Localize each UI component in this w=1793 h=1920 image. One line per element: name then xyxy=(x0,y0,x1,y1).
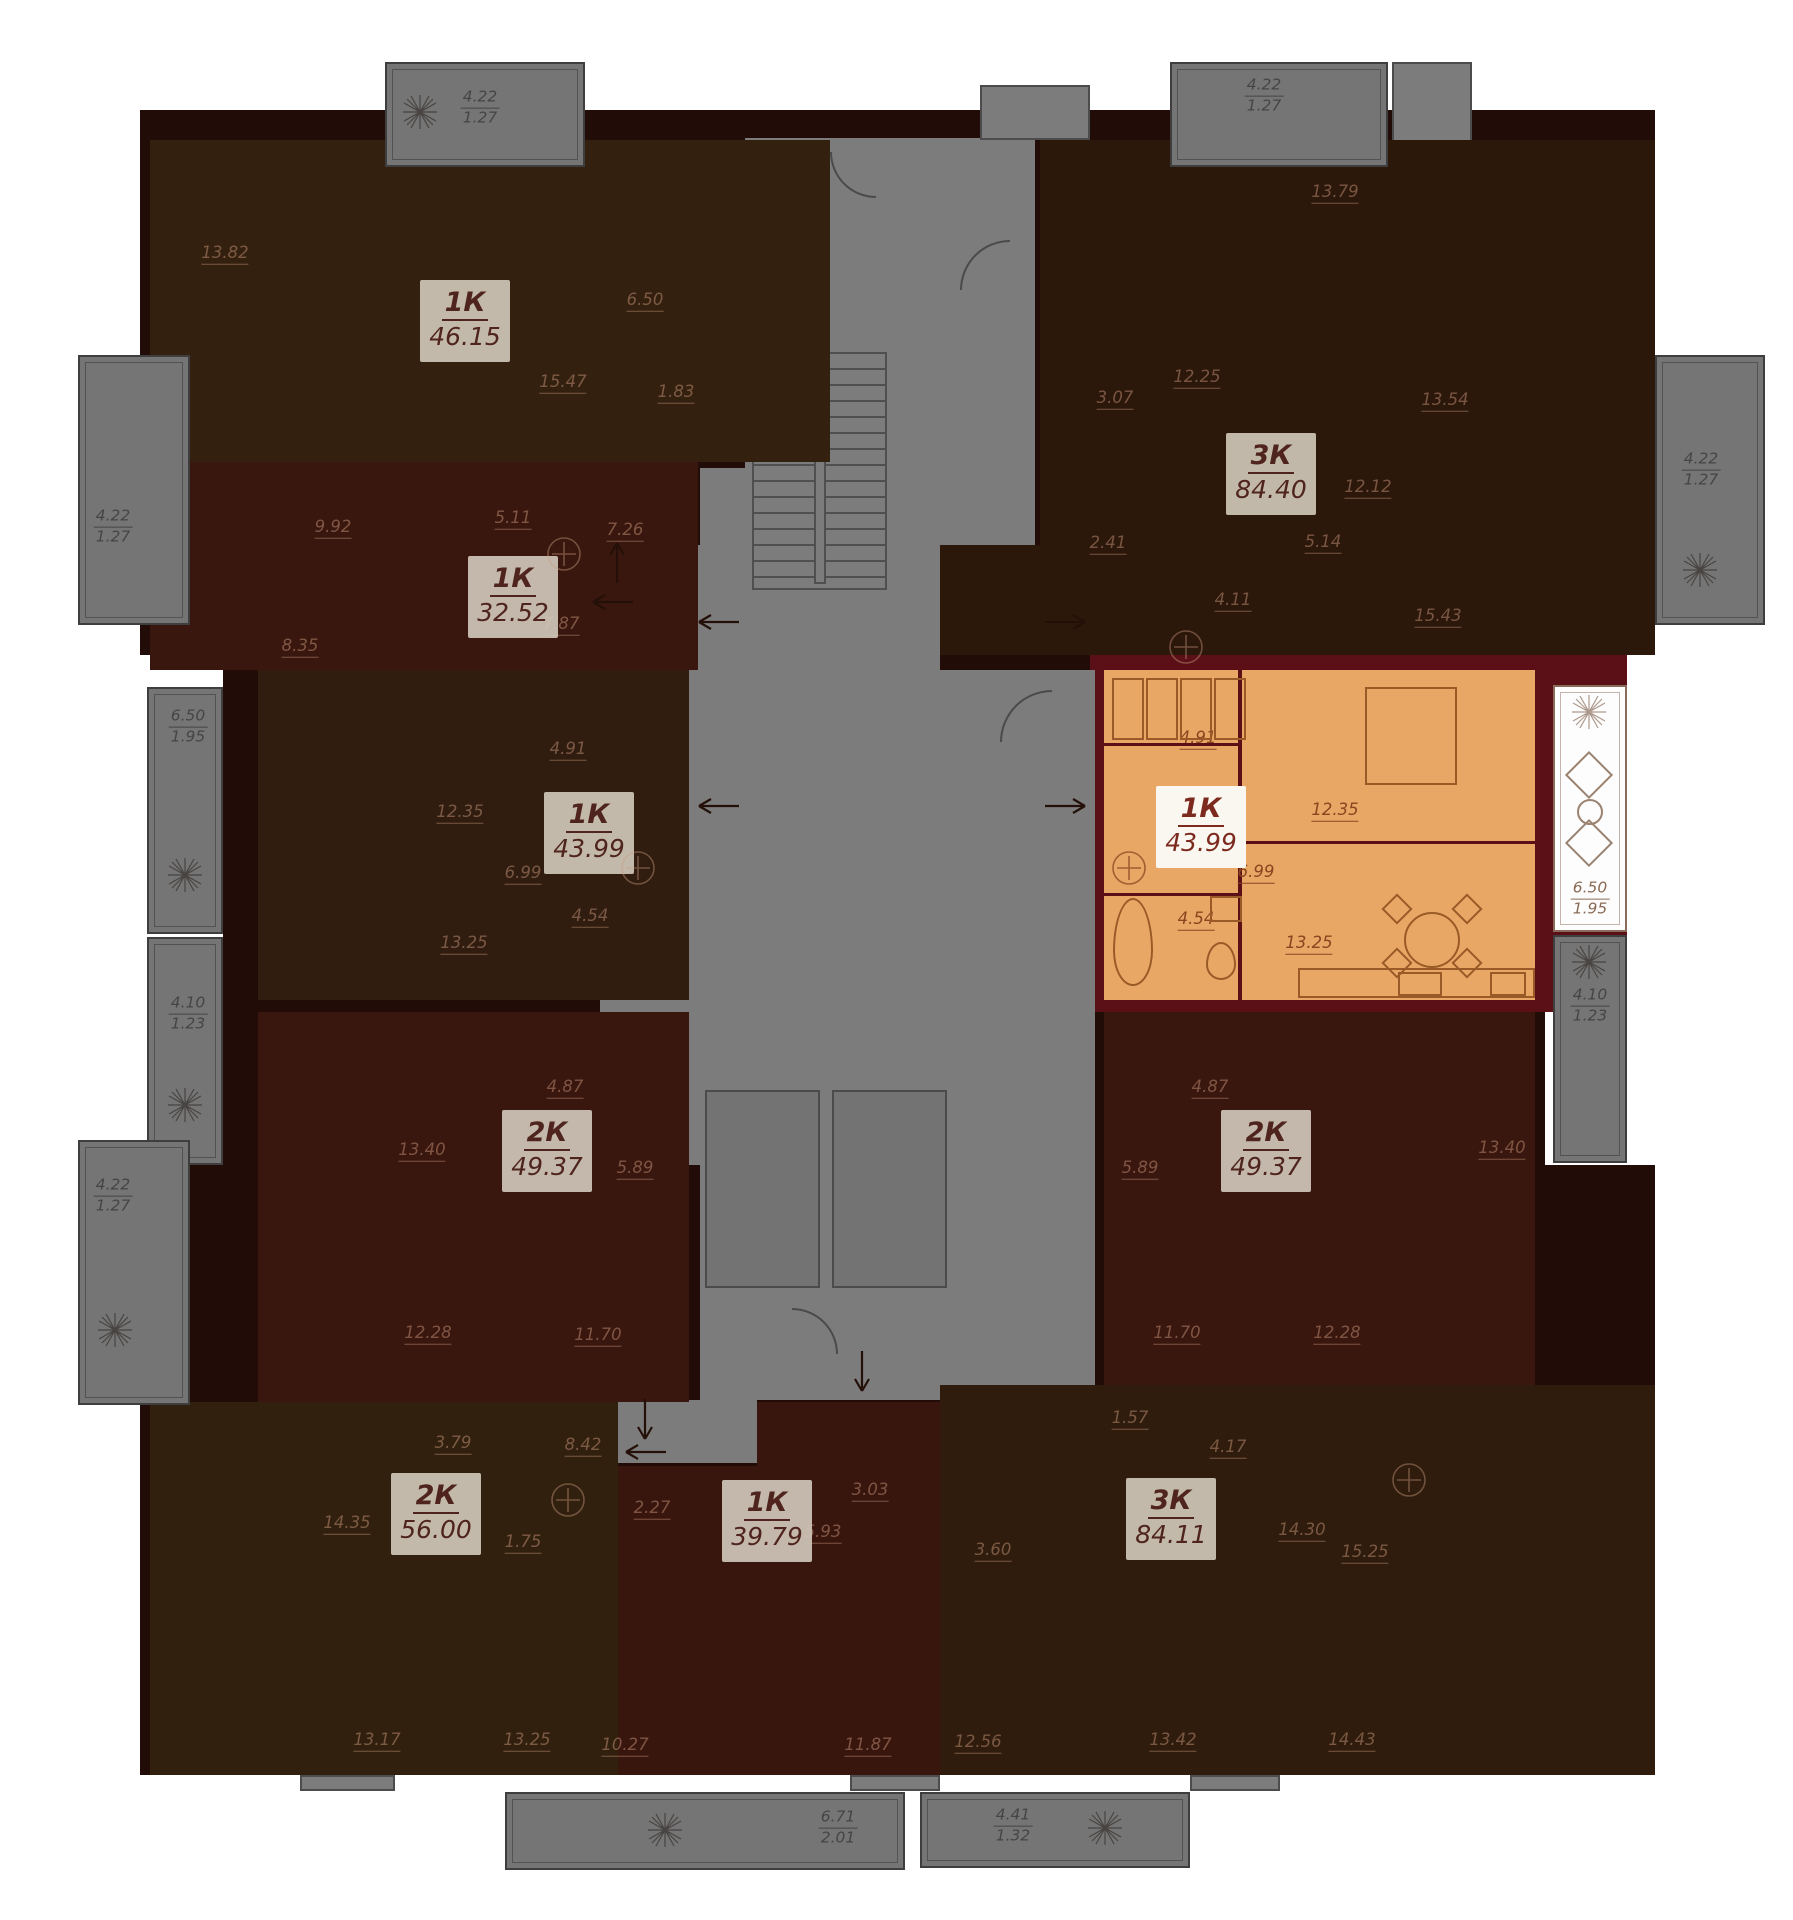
entrance-arrow-icon xyxy=(695,613,741,631)
unit-type-label: 2К xyxy=(413,1480,460,1514)
room-area-value: 5.89 xyxy=(1122,1158,1159,1180)
unit-type-label: 3К xyxy=(1248,440,1295,474)
room-area-label: 12.28 xyxy=(1313,1325,1360,1342)
balcony-area-label: 4.221.27 xyxy=(1682,450,1721,491)
room-area-label: 6.50 xyxy=(627,292,664,309)
balcony-area-value: 4.41 xyxy=(994,1806,1033,1827)
bed-icon xyxy=(1365,687,1457,785)
balcony-coef-value: 1.95 xyxy=(1571,900,1610,919)
room-area-value: 13.25 xyxy=(440,933,487,955)
entrance-arrow-icon xyxy=(1043,797,1089,815)
balcony-coef-value: 1.27 xyxy=(94,528,133,547)
room-area-label: 12.12 xyxy=(1344,479,1391,496)
toilet-icon xyxy=(1206,942,1236,980)
unit-card[interactable]: 2К49.37 xyxy=(1221,1110,1311,1192)
room-area-value: 11.70 xyxy=(1153,1323,1200,1345)
balcony-area-value: 4.22 xyxy=(94,1176,133,1197)
unit-area-label: 84.11 xyxy=(1130,1519,1212,1552)
room-area-label: 4.11 xyxy=(1215,592,1252,609)
entrance-arrow-icon xyxy=(695,797,741,815)
room-area-value: 13.82 xyxy=(201,243,248,265)
room-area-value: 15.25 xyxy=(1341,1542,1388,1564)
room-area-value: 4.54 xyxy=(572,906,609,928)
room-area-label: 13.17 xyxy=(353,1732,400,1749)
unit-type-label: 3К xyxy=(1148,1485,1195,1519)
unit-inner-wall xyxy=(1240,841,1535,844)
elevator-icon xyxy=(832,1090,947,1288)
room-area-label: 2.41 xyxy=(1090,535,1127,552)
room-area-label: 1.57 xyxy=(1112,1410,1149,1427)
balcony-coef-value: 1.27 xyxy=(1682,471,1721,490)
room-area-label: 12.35 xyxy=(1311,802,1358,819)
room-area-label: 15.47 xyxy=(539,374,586,391)
room-area-value: 13.25 xyxy=(1285,933,1332,955)
balcony-area-value: 6.50 xyxy=(1571,879,1610,900)
unit-type-label: 1К xyxy=(744,1487,791,1521)
plant-icon xyxy=(166,856,204,894)
section-marker-icon xyxy=(1167,628,1205,666)
balcony-coef-value: 1.27 xyxy=(1245,97,1284,116)
plant-icon xyxy=(1570,693,1608,731)
washer-icon xyxy=(1210,896,1242,922)
unit-area-label: 84.40 xyxy=(1230,474,1312,507)
room-area-value: 14.30 xyxy=(1278,1520,1325,1542)
room-area-value: 5.14 xyxy=(1305,532,1342,554)
entrance-arrow-icon xyxy=(589,593,635,611)
room-area-label: 4.54 xyxy=(572,908,609,925)
room-area-value: 6.99 xyxy=(505,863,542,885)
entry-stub xyxy=(850,1775,940,1791)
room-area-label: 14.43 xyxy=(1328,1732,1375,1749)
balcony-area-label: 6.501.95 xyxy=(1571,879,1610,920)
unit-area-label: 43.99 xyxy=(548,833,630,866)
corridor-area xyxy=(700,670,1095,1400)
unit-card[interactable]: 1К46.15 xyxy=(420,280,510,362)
room-area-value: 13.25 xyxy=(503,1730,550,1752)
room-area-value: 5.11 xyxy=(495,508,532,530)
balcony-area-value: 4.10 xyxy=(1571,986,1610,1007)
balcony-area-value: 6.50 xyxy=(169,707,208,728)
unit-card[interactable]: 1К39.79 xyxy=(722,1480,812,1562)
wardrobe-icon xyxy=(1146,678,1178,740)
room-area-value: 12.35 xyxy=(436,802,483,824)
unit-inner-wall xyxy=(1104,743,1240,746)
section-marker-icon xyxy=(1390,1461,1428,1499)
balcony-area-label: 6.712.01 xyxy=(819,1808,858,1849)
room-area-value: 13.54 xyxy=(1421,390,1468,412)
unit-area-label: 46.15 xyxy=(424,321,506,354)
room-area-value: 1.83 xyxy=(658,382,695,404)
room-area-value: 13.79 xyxy=(1311,182,1358,204)
balcony xyxy=(147,937,223,1165)
balcony-coef-value: 2.01 xyxy=(819,1829,858,1848)
plant-icon xyxy=(401,93,439,131)
unit-area-label: 32.52 xyxy=(472,597,554,630)
room-area-value: 14.35 xyxy=(323,1513,370,1535)
balcony-area-label: 4.221.27 xyxy=(1245,76,1284,117)
balcony-area-value: 4.10 xyxy=(169,994,208,1015)
room-area-label: 10.27 xyxy=(601,1737,648,1754)
room-area-value: 9.92 xyxy=(315,517,352,539)
room-area-label: 14.30 xyxy=(1278,1522,1325,1539)
room-area-label: 13.54 xyxy=(1421,392,1468,409)
wardrobe-icon xyxy=(1180,678,1212,740)
section-marker-icon xyxy=(619,849,657,887)
room-area-label: 4.91 xyxy=(550,741,587,758)
entrance-arrow-icon xyxy=(608,539,626,585)
balcony-area-label: 4.411.32 xyxy=(994,1806,1033,1847)
room-area-value: 3.79 xyxy=(435,1433,472,1455)
room-area-label: 12.28 xyxy=(404,1325,451,1342)
room-area-label: 3.03 xyxy=(852,1482,889,1499)
section-marker-icon xyxy=(545,535,583,573)
unit-area-label: 56.00 xyxy=(395,1514,477,1547)
balcony-area-label: 4.221.27 xyxy=(461,88,500,129)
unit-area-label: 39.79 xyxy=(726,1521,808,1554)
unit-card[interactable]: 1К43.99 xyxy=(1156,786,1246,868)
balcony xyxy=(920,1792,1190,1868)
balcony-coef-value: 1.95 xyxy=(169,728,208,747)
entry-stub xyxy=(300,1775,395,1791)
room-area-value: 2.41 xyxy=(1090,533,1127,555)
room-area-label: 13.42 xyxy=(1149,1732,1196,1749)
plant-icon xyxy=(166,1086,204,1124)
unit-1k-39-79[interactable] xyxy=(757,1402,940,1466)
room-area-label: 11.70 xyxy=(1153,1325,1200,1342)
room-area-label: 9.92 xyxy=(315,519,352,536)
room-area-value: 4.17 xyxy=(1210,1437,1247,1459)
room-area-label: 5.11 xyxy=(495,510,532,527)
room-area-label: 3.79 xyxy=(435,1435,472,1452)
entrance-arrow-icon xyxy=(622,1443,668,1461)
room-area-value: 3.03 xyxy=(852,1480,889,1502)
section-marker-icon xyxy=(549,1481,587,1519)
unit-card[interactable]: 2К49.37 xyxy=(502,1110,592,1192)
balcony-area-label: 4.221.27 xyxy=(94,507,133,548)
unit-type-label: 1К xyxy=(442,287,489,321)
balcony-coef-value: 1.23 xyxy=(169,1015,208,1034)
plant-icon xyxy=(1681,551,1719,589)
entry-stub xyxy=(980,85,1090,140)
balcony-coef-value: 1.27 xyxy=(461,109,500,128)
room-area-label: 5.14 xyxy=(1305,534,1342,551)
balcony-area-label: 6.501.95 xyxy=(169,707,208,748)
unit-card[interactable]: 2К56.00 xyxy=(391,1473,481,1555)
plant-icon xyxy=(1086,1809,1124,1847)
wardrobe-icon xyxy=(1112,678,1144,740)
room-area-label: 13.25 xyxy=(503,1732,550,1749)
balcony-area-value: 4.22 xyxy=(461,88,500,109)
stove-icon xyxy=(1398,972,1442,996)
room-area-label: 1.83 xyxy=(658,384,695,401)
room-area-value: 1.75 xyxy=(505,1532,542,1554)
elevator-icon xyxy=(705,1090,820,1288)
room-area-label: 2.27 xyxy=(634,1500,671,1517)
room-area-label: 12.25 xyxy=(1173,369,1220,386)
plant-icon xyxy=(646,1811,684,1849)
room-area-value: 3.60 xyxy=(975,1540,1012,1562)
room-area-value: 2.27 xyxy=(634,1498,671,1520)
entrance-arrow-icon xyxy=(1043,613,1089,631)
room-area-value: 13.17 xyxy=(353,1730,400,1752)
unit-3k-84-11[interactable] xyxy=(940,1385,1655,1775)
room-area-value: 8.42 xyxy=(565,1435,602,1457)
entry-stub xyxy=(1190,1775,1280,1791)
plant-icon xyxy=(96,1311,134,1349)
balcony-area-value: 4.22 xyxy=(94,507,133,528)
plant-icon xyxy=(1570,943,1608,981)
balcony-area-value: 4.22 xyxy=(1682,450,1721,471)
room-area-value: 15.47 xyxy=(539,372,586,394)
unit-area-label: 49.37 xyxy=(506,1151,588,1184)
room-area-label: 12.35 xyxy=(436,804,483,821)
room-area-label: 6.99 xyxy=(505,865,542,882)
room-area-value: 13.42 xyxy=(1149,1730,1196,1752)
sink-icon xyxy=(1490,972,1526,996)
room-area-value: 4.91 xyxy=(550,739,587,761)
unit-2k-49-37-left[interactable] xyxy=(258,1012,689,1402)
room-area-label: 3.07 xyxy=(1097,390,1134,407)
balcony-area-label: 4.221.27 xyxy=(94,1176,133,1217)
room-area-value: 1.57 xyxy=(1112,1408,1149,1430)
unit-area-label: 49.37 xyxy=(1225,1151,1307,1184)
room-area-label: 13.40 xyxy=(1478,1140,1525,1157)
balcony-coef-value: 1.23 xyxy=(1571,1007,1610,1026)
room-area-label: 4.87 xyxy=(547,1079,584,1096)
balcony xyxy=(78,355,190,625)
unit-type-label: 2К xyxy=(524,1117,571,1151)
room-area-label: 11.87 xyxy=(844,1737,891,1754)
room-area-value: 3.07 xyxy=(1097,388,1134,410)
entrance-arrow-icon xyxy=(636,1397,654,1443)
room-area-value: 5.89 xyxy=(617,1158,654,1180)
section-marker-icon xyxy=(1110,849,1148,887)
room-area-value: 8.35 xyxy=(282,636,319,658)
room-area-value: 11.70 xyxy=(574,1325,621,1347)
room-area-value: 13.40 xyxy=(1478,1138,1525,1160)
balcony-area-value: 6.71 xyxy=(819,1808,858,1829)
room-area-label: 8.35 xyxy=(282,638,319,655)
room-area-value: 10.27 xyxy=(601,1735,648,1757)
room-area-label: 15.43 xyxy=(1414,608,1461,625)
room-area-label: 7.26 xyxy=(607,522,644,539)
balcony-railing xyxy=(154,944,216,1158)
room-area-label: 12.56 xyxy=(954,1734,1001,1751)
room-area-value: 4.54 xyxy=(1178,909,1215,931)
room-area-value: 12.28 xyxy=(1313,1323,1360,1345)
room-area-label: 8.42 xyxy=(565,1437,602,1454)
unit-type-label: 2К xyxy=(1243,1117,1290,1151)
balcony-area-value: 4.22 xyxy=(1245,76,1284,97)
entrance-arrow-icon xyxy=(853,1349,871,1395)
room-area-label: 15.25 xyxy=(1341,1544,1388,1561)
wardrobe-icon xyxy=(1214,678,1246,740)
room-area-value: 12.35 xyxy=(1311,800,1358,822)
room-area-label: 14.35 xyxy=(323,1515,370,1532)
dining-table-icon xyxy=(1404,912,1460,968)
room-area-value: 4.11 xyxy=(1215,590,1252,612)
floor-plan: 13.826.501.8315.471К46.159.925.117.268.3… xyxy=(0,0,1793,1920)
room-area-value: 14.43 xyxy=(1328,1730,1375,1752)
room-area-label: 5.89 xyxy=(617,1160,654,1177)
room-area-label: 4.54 xyxy=(1178,911,1215,928)
room-area-label: 1.75 xyxy=(505,1534,542,1551)
room-area-label: 4.17 xyxy=(1210,1439,1247,1456)
unit-card[interactable]: 3К84.11 xyxy=(1126,1478,1216,1560)
unit-2k-56-00[interactable] xyxy=(150,1402,618,1775)
room-area-label: 3.60 xyxy=(975,1542,1012,1559)
room-area-value: 15.43 xyxy=(1414,606,1461,628)
room-area-label: 13.82 xyxy=(201,245,248,262)
room-area-label: 13.25 xyxy=(440,935,487,952)
unit-type-label: 1К xyxy=(490,563,537,597)
room-area-label: 13.25 xyxy=(1285,935,1332,952)
room-area-value: 4.87 xyxy=(1192,1077,1229,1099)
unit-card[interactable]: 3К84.40 xyxy=(1226,433,1316,515)
room-area-value: 11.87 xyxy=(844,1735,891,1757)
room-area-value: 4.87 xyxy=(547,1077,584,1099)
unit-type-label: 1К xyxy=(566,799,613,833)
room-area-label: 13.79 xyxy=(1311,184,1358,201)
balcony-coef-value: 1.27 xyxy=(94,1197,133,1216)
room-area-label: 5.89 xyxy=(1122,1160,1159,1177)
balcony-area-label: 4.101.23 xyxy=(169,994,208,1035)
room-area-value: 12.56 xyxy=(954,1732,1001,1754)
room-area-value: 12.12 xyxy=(1344,477,1391,499)
balcony-area-label: 4.101.23 xyxy=(1571,986,1610,1027)
room-area-label: 4.87 xyxy=(1192,1079,1229,1096)
room-area-value: 13.40 xyxy=(398,1140,445,1162)
room-area-value: 6.50 xyxy=(627,290,664,312)
balcony-coef-value: 1.32 xyxy=(994,1827,1033,1846)
balcony-railing xyxy=(85,362,183,618)
room-area-label: 13.40 xyxy=(398,1142,445,1159)
room-area-value: 12.25 xyxy=(1173,367,1220,389)
unit-type-label: 1К xyxy=(1178,793,1225,827)
unit-area-label: 43.99 xyxy=(1160,827,1242,860)
room-area-value: 12.28 xyxy=(404,1323,451,1345)
balcony-railing xyxy=(927,1799,1183,1861)
room-area-label: 11.70 xyxy=(574,1327,621,1344)
